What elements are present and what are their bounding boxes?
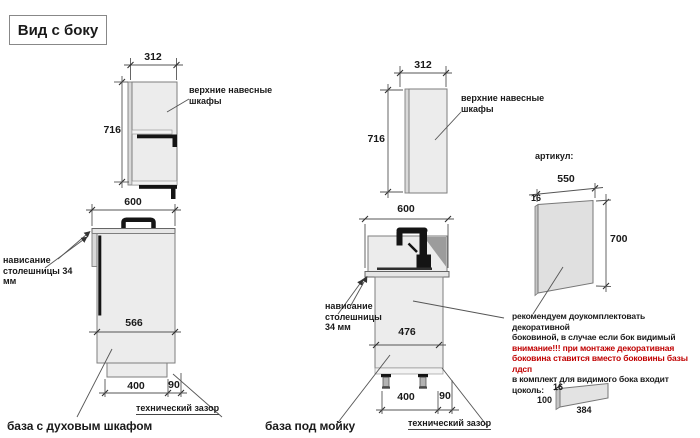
cabinet-body — [409, 89, 447, 193]
oven-handle — [124, 220, 154, 229]
plinth — [107, 363, 167, 377]
dim-base-depth-left: 566 — [112, 317, 156, 329]
recommendation-note: рекомендуем доукомплектовать декоративно… — [512, 311, 694, 395]
dim-back-gap-middle: 90 — [431, 390, 459, 402]
dim-upper-height-left: 716 — [97, 124, 121, 136]
dim-base-depth-middle: 476 — [385, 326, 429, 338]
cabinet-body — [97, 234, 175, 364]
technical-gap-label-left: технический зазор — [136, 403, 219, 415]
shelf — [132, 130, 172, 134]
dim-plinth-height: 100 — [530, 395, 552, 405]
caption-sink-base: база под мойку — [265, 420, 355, 434]
bottom-bracket — [171, 185, 176, 199]
note-line-attention: внимание!!! при монтаже декоративная — [512, 343, 694, 354]
dim-plinth-depth-middle: 400 — [384, 391, 428, 403]
note-line-attention: боковина ставится вместо боковины базы л… — [512, 353, 694, 374]
upper-cabinets-label-middle: верхние навесные шкафы — [461, 93, 547, 114]
countertop-overhang-edge — [92, 234, 97, 267]
shelf-bracket — [137, 135, 177, 139]
bottom-panel — [375, 368, 443, 374]
left-base-cabinet-oven — [92, 220, 175, 377]
dim-base-width-middle: 600 — [384, 203, 428, 215]
dim-plinth-thickness: 16 — [547, 382, 563, 392]
dim-back-gap-left: 90 — [160, 379, 188, 391]
adjustable-leg — [381, 374, 391, 389]
article-label: артикул: — [535, 151, 573, 161]
countertop — [365, 272, 449, 278]
upper-cabinets-label-left: верхние навесные шкафы — [189, 85, 275, 106]
note-line: в комплект для видимого бока входит цоко… — [512, 374, 694, 395]
cabinet-door-panel — [128, 82, 132, 185]
caption-leader — [336, 355, 390, 425]
drawing-title-box: Вид с боку — [9, 15, 107, 45]
caption-oven-base: база с духовым шкафом — [7, 420, 152, 434]
oven-door-front — [98, 236, 101, 316]
shelf-bracket — [173, 135, 178, 148]
technical-gap-label-middle: технический зазор — [408, 418, 491, 430]
middle-upper-cabinet — [405, 89, 447, 193]
note-line: боковиной, в случае если бок видимый — [512, 332, 694, 343]
dim-panel-width: 550 — [544, 173, 588, 185]
dim-base-width-left: 600 — [111, 196, 155, 208]
sink-bottom — [377, 268, 432, 271]
overhang-label-left: нависание столешницы 34 мм — [3, 255, 83, 287]
middle-base-cabinet-sink — [365, 228, 449, 389]
dim-panel-height: 700 — [610, 233, 640, 245]
dim-upper-width-left: 312 — [131, 51, 175, 63]
overhang-label-middle: нависание столешницы 34 мм — [325, 301, 377, 333]
adjustable-leg — [418, 374, 428, 389]
side-view-drawing-page: Вид с боку 312 716 верхние навесные шкаф… — [0, 0, 700, 438]
caption-leader — [77, 349, 112, 417]
countertop — [92, 229, 175, 234]
bottom-panel — [132, 181, 177, 185]
drawing-title: Вид с боку — [18, 22, 99, 39]
dim-panel-thickness: 16 — [531, 193, 541, 203]
dim-upper-height-middle: 716 — [361, 133, 385, 145]
cabinet-body — [375, 277, 443, 368]
dim-upper-width-middle: 312 — [401, 59, 445, 71]
dim-plinth-depth-left: 400 — [114, 380, 158, 392]
note-line: рекомендуем доукомплектовать декоративно… — [512, 311, 694, 332]
left-upper-cabinet — [128, 82, 177, 199]
panel-front — [538, 201, 593, 294]
dim-plinth-length: 384 — [566, 405, 602, 415]
cabinet-door-panel — [405, 89, 409, 193]
